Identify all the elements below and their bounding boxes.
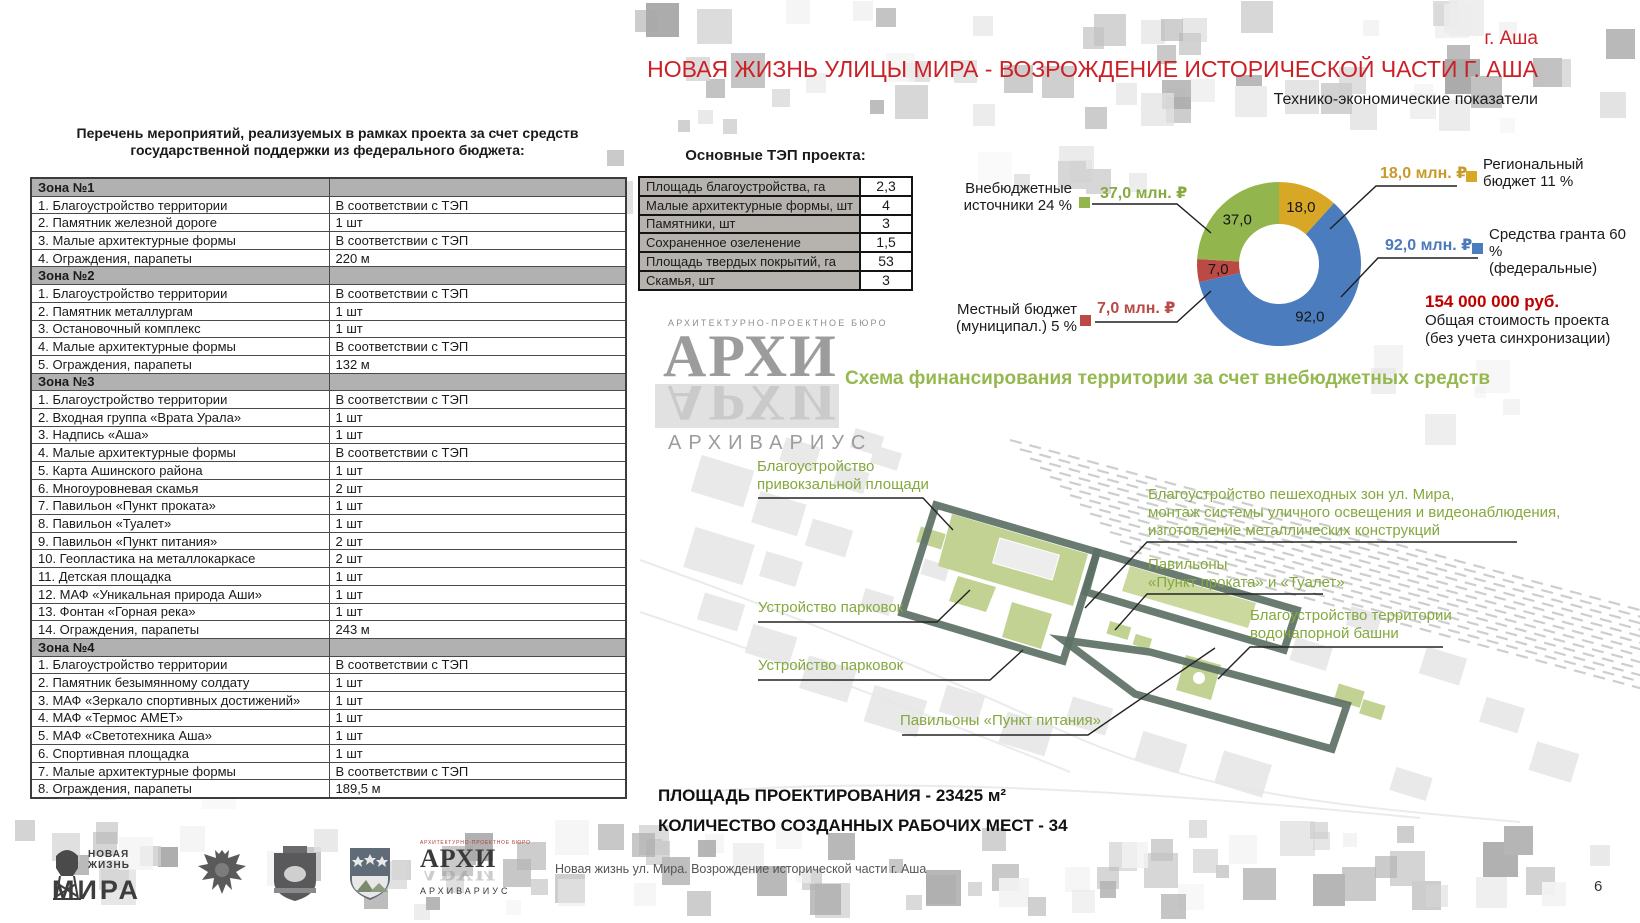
mosaic-square <box>1444 4 1473 33</box>
annotation-food-pavilions: Павильоны «Пункт питания» <box>900 712 1101 730</box>
mosaic-square <box>1144 853 1179 888</box>
mosaic-square <box>895 85 928 118</box>
mosaic-square <box>828 833 855 860</box>
project-total-cost: 154 000 000 руб. Общая стоимость проекта… <box>1425 292 1610 348</box>
mosaic-square <box>687 891 711 915</box>
mosaic-square <box>678 120 690 132</box>
mosaic-square <box>876 8 896 28</box>
mosaic-square <box>698 840 715 857</box>
footer-caption: Новая жизнь ул. Мира. Возрождение истори… <box>555 862 926 876</box>
tep-row: Памятники, шт3 <box>639 215 912 234</box>
mosaic-square <box>698 110 713 125</box>
event-row: 4. Малые архитектурные формыВ соответств… <box>31 338 626 356</box>
legend-offbudget-sources: Внебюджетные источники 24 % <box>964 180 1072 214</box>
amount-regional: 18,0 млн. ₽ <box>1380 163 1467 183</box>
page-title: НОВАЯ ЖИЗНЬ УЛИЦЫ МИРА - ВОЗРОЖДЕНИЕ ИСТ… <box>647 56 1538 83</box>
event-row: 9. Павильон «Пункт питания»2 шт <box>31 532 626 550</box>
tep-row: Малые архитектурные формы, шт4 <box>639 196 912 215</box>
event-row: 2. Памятник безымянному солдату1 шт <box>31 674 626 692</box>
mosaic-square <box>1085 107 1107 129</box>
event-row: 8. Павильон «Туалет»1 шт <box>31 515 626 533</box>
mosaic-square <box>506 900 521 915</box>
mosaic-square <box>1313 874 1346 907</box>
mosaic-square <box>697 9 733 45</box>
event-row: 4. Ограждения, парапеты220 м <box>31 249 626 267</box>
design-area-line: ПЛОЩАДЬ ПРОЕКТИРОВАНИЯ - 23425 м² <box>658 786 1006 806</box>
tep-table: Площадь благоустройства, га2,3Малые архи… <box>638 176 913 291</box>
amount-offbudget: 37,0 млн. ₽ <box>1100 183 1187 203</box>
event-row: 8. Ограждения, парапеты189,5 м <box>31 780 626 798</box>
mosaic-square <box>870 100 884 114</box>
event-row: 13. Фонтан «Горная река»1 шт <box>31 603 626 621</box>
archi-footer-logo: АРХИТЕКТУРНО-ПРОЕКТНОЕ БЮРО АРХИ АРХИ АР… <box>420 840 530 896</box>
mosaic-square <box>1161 894 1186 919</box>
mosaic-square <box>634 883 657 906</box>
event-row: 7. Павильон «Пункт проката»1 шт <box>31 497 626 515</box>
amount-local: 7,0 млн. ₽ <box>1097 298 1175 318</box>
mosaic-square <box>1476 877 1507 908</box>
mosaic-square <box>1141 93 1174 126</box>
mosaic-square <box>1028 897 1046 915</box>
mosaic-square <box>973 104 995 126</box>
mosaic-square <box>1122 842 1147 867</box>
mosaic-square <box>772 89 790 107</box>
city-label: г. Аша <box>1484 28 1538 50</box>
archi-watermark-reflection: АРХИ <box>663 386 838 430</box>
mosaic-square <box>1426 885 1449 908</box>
event-row: 5. МАФ «Светотехника Аша»1 шт <box>31 727 626 745</box>
chelyabinsk-coat-of-arms-icon <box>272 846 318 902</box>
tep-row: Сохраненное озеленение1,5 <box>639 233 912 252</box>
zone-header-row: Зона №3 <box>31 373 626 391</box>
page-number: 6 <box>1594 878 1602 895</box>
event-row: 4. Малые архитектурные формыВ соответств… <box>31 444 626 462</box>
event-row: 4. МАФ «Термос АМЕТ»1 шт <box>31 709 626 727</box>
scheme-title: Схема финансирования территории за счет … <box>845 368 1490 390</box>
event-row: 12. МАФ «Уникальная природа Аши»1 шт <box>31 585 626 603</box>
event-row: 7. Малые архитектурные формыВ соответств… <box>31 762 626 780</box>
legend-grant-funds: Средства гранта 60 % (федеральные) <box>1489 226 1640 277</box>
total-cost-caption-2: (без учета синхронизации) <box>1425 330 1610 348</box>
mosaic-square <box>632 833 655 856</box>
project-logo: НОВАЯ ЖИЗНЬ МИРА <box>52 842 182 906</box>
mosaic-square <box>999 878 1028 907</box>
event-row: 1. Благоустройство территорииВ соответст… <box>31 285 626 303</box>
mosaic-square <box>906 895 921 910</box>
annotation-station-square: Благоустройство привокзальной площади <box>757 458 929 494</box>
mosaic-square <box>1342 867 1376 901</box>
mosaic-square <box>1375 856 1397 878</box>
mosaic-square <box>1600 92 1626 118</box>
mosaic-square <box>558 879 585 906</box>
event-row: 3. Надпись «Аша»1 шт <box>31 426 626 444</box>
mosaic-square <box>646 3 679 36</box>
mosaic-square <box>1542 882 1566 906</box>
mosaic-square <box>1343 833 1357 847</box>
mosaic-square <box>926 870 962 906</box>
mosaic-square <box>1504 826 1533 855</box>
water-tower-icon <box>1193 672 1205 684</box>
watermark-name: АРХИВАРИУС <box>668 432 872 455</box>
zone-header-row: Зона №2 <box>31 267 626 285</box>
annotation-parking-2: Устройство парковок <box>758 657 903 675</box>
mosaic-square <box>968 882 982 896</box>
project-logo-word: МИРА <box>52 875 141 906</box>
mosaic-square <box>555 820 589 854</box>
mosaic-square <box>1590 845 1610 865</box>
archi-footer-word: АРХИ <box>420 846 530 871</box>
mosaic-square <box>1059 146 1094 181</box>
archi-footer-reflection: АРХИ <box>420 871 530 884</box>
mosaic-square <box>1397 826 1414 843</box>
event-row: 1. Благоустройство территорииВ соответст… <box>31 656 626 674</box>
archi-watermark-logo: АРХИ <box>663 326 838 386</box>
event-row: 2. Памятник металлургам1 шт <box>31 302 626 320</box>
mosaic-square <box>853 1 872 20</box>
annotation-pavilions-rent-wc: Павильоны «Пункт проката» и «Туалет» <box>1148 556 1345 592</box>
asha-coat-of-arms-icon <box>348 846 392 902</box>
mosaic-square <box>973 16 993 36</box>
mosaic-square <box>723 119 737 133</box>
event-row: 6. Многоуровневая скамья2 шт <box>31 479 626 497</box>
mosaic-square <box>1065 867 1090 892</box>
mosaic-square <box>531 879 547 895</box>
tep-table-title: Основные ТЭП проекта: <box>638 147 913 164</box>
events-table: Зона №11. Благоустройство территорииВ со… <box>30 177 627 799</box>
zone-header-row: Зона №4 <box>31 638 626 656</box>
mosaic-square <box>1543 59 1572 88</box>
event-row: 6. Спортивная площадка1 шт <box>31 745 626 763</box>
event-row: 5. Карта Ашинского района1 шт <box>31 462 626 480</box>
event-row: 10. Геопластика на металлокаркасе2 шт <box>31 550 626 568</box>
legend-local-budget: Местный бюджет (муниципал.) 5 % <box>956 301 1077 335</box>
event-row: 1. Благоустройство территорииВ соответст… <box>31 391 626 409</box>
mosaic-square <box>1241 1 1273 33</box>
slide-page: г. Аша НОВАЯ ЖИЗНЬ УЛИЦЫ МИРА - ВОЗРОЖДЕ… <box>0 0 1640 923</box>
event-row: 3. МАФ «Зеркало спортивных достижений»1 … <box>31 691 626 709</box>
mosaic-square <box>1243 868 1276 901</box>
mosaic-square <box>598 824 624 850</box>
event-row: 3. Остановочный комплекс1 шт <box>31 320 626 338</box>
mosaic-square <box>1193 849 1218 874</box>
project-logo-text: НОВАЯ ЖИЗНЬ <box>88 849 130 871</box>
total-cost-caption-1: Общая стоимость проекта <box>1425 312 1610 330</box>
mosaic-square <box>1500 118 1515 133</box>
event-row: 11. Детская площадка1 шт <box>31 568 626 586</box>
tep-row: Скамья, шт3 <box>639 271 912 290</box>
event-row: 14. Ограждения, парапеты243 м <box>31 621 626 639</box>
event-row: 2. Входная группа «Врата Урала»1 шт <box>31 408 626 426</box>
mosaic-square <box>15 820 36 841</box>
mosaic-square <box>1116 83 1138 105</box>
total-cost-value: 154 000 000 руб. <box>1425 292 1610 312</box>
event-row: 3. Малые архитектурные формыВ соответств… <box>31 232 626 250</box>
russia-eagle-emblem-icon <box>196 846 248 900</box>
mosaic-square <box>1606 29 1635 58</box>
mosaic-square <box>1363 20 1379 36</box>
annotation-water-tower: Благоустройство территории водонапорной … <box>1250 607 1452 643</box>
events-table-title: Перечень мероприятий, реализуемых в рамк… <box>30 125 625 159</box>
page-subtitle: Технико-экономические показатели <box>1274 91 1538 109</box>
mosaic-square <box>1235 86 1266 117</box>
jobs-created-line: КОЛИЧЕСТВО СОЗДАННЫХ РАБОЧИХ МЕСТ - 34 <box>658 816 1068 836</box>
archi-footer-name: АРХИВАРИУС <box>420 886 530 896</box>
event-row: 2. Памятник железной дороге1 шт <box>31 214 626 232</box>
legend-regional-budget: Региональный бюджет 11 % <box>1483 156 1584 190</box>
event-row: 1. Благоустройство территорииВ соответст… <box>31 196 626 214</box>
mosaic-square <box>1161 19 1183 41</box>
mosaic-square <box>1097 867 1119 889</box>
mosaic-square <box>1094 14 1126 46</box>
mosaic-square <box>786 0 809 23</box>
mosaic-square <box>426 897 439 910</box>
event-row: 5. Ограждения, парапеты132 м <box>31 355 626 373</box>
mosaic-square <box>1072 890 1095 913</box>
tep-row: Площадь твердых покрытий, га53 <box>639 252 912 271</box>
mosaic-square <box>1229 835 1258 864</box>
zone-header-row: Зона №1 <box>31 178 626 196</box>
annotation-pedestrian-zones: Благоустройство пешеходных зон ул. Мира,… <box>1148 486 1560 540</box>
amount-grant: 92,0 млн. ₽ <box>1385 235 1472 255</box>
annotation-parking-1: Устройство парковок <box>758 599 903 617</box>
mosaic-square <box>1310 822 1328 840</box>
tep-row: Площадь благоустройства, га2,3 <box>639 177 912 196</box>
